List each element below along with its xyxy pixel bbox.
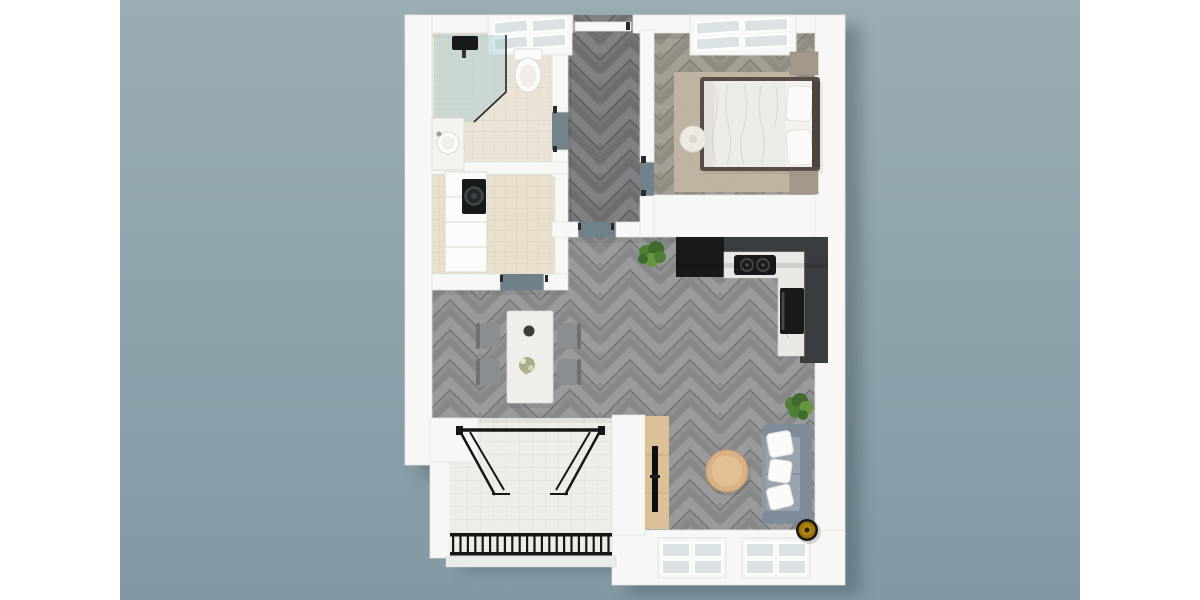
bedroom xyxy=(674,52,823,194)
table-bowl xyxy=(524,326,535,337)
floor-plan-screenshot xyxy=(0,0,1200,600)
toilet xyxy=(514,49,542,92)
hallway-floor xyxy=(568,33,640,222)
laundry-room xyxy=(445,172,487,272)
washing-machine xyxy=(462,179,486,214)
shower-arm xyxy=(462,50,466,58)
coffee-table-top xyxy=(712,456,743,487)
door-post-right xyxy=(598,426,605,435)
tv-stand xyxy=(650,475,660,478)
sofa-pillow xyxy=(766,430,794,458)
wall-hall-bottom-left xyxy=(552,222,578,237)
floor-plan-render xyxy=(0,0,1200,600)
chair xyxy=(476,323,500,349)
washbasin xyxy=(432,118,464,170)
duvet-fold xyxy=(704,81,714,167)
wall-left xyxy=(405,15,432,465)
kitchen-tall-cabinet xyxy=(676,237,724,277)
nightstand-top xyxy=(790,52,818,75)
counter-shadow xyxy=(676,263,828,268)
bed-pillow-top xyxy=(786,85,813,122)
sofa-backrest xyxy=(800,424,812,524)
sofa xyxy=(762,424,812,524)
wall-bedroom-left-lower xyxy=(640,196,654,237)
television xyxy=(652,446,658,512)
wall-bedroom-left xyxy=(640,30,654,162)
entry-door xyxy=(575,22,631,31)
wall-balcony-right xyxy=(612,415,645,535)
dining-table xyxy=(507,311,553,403)
bed-pillow-bottom xyxy=(786,129,813,166)
wall-balcony-left-block xyxy=(430,418,478,462)
chair xyxy=(557,323,581,349)
balcony-curb xyxy=(446,556,616,567)
oven xyxy=(780,288,804,334)
shower-head xyxy=(452,36,478,50)
pouf-button xyxy=(689,135,697,143)
wall-laundry-bottom-left xyxy=(432,274,500,290)
chair xyxy=(557,359,581,385)
nightstand-bottom xyxy=(790,171,818,194)
wall-balcony-left xyxy=(430,462,450,558)
living-window-left xyxy=(658,538,726,578)
sofa-pillow xyxy=(768,459,793,484)
bedroom-window xyxy=(690,15,796,55)
headboard xyxy=(812,81,820,167)
door-post-left xyxy=(456,426,463,435)
tv-sideboard xyxy=(645,416,669,529)
living-window-right xyxy=(742,538,810,578)
chair xyxy=(476,359,500,385)
